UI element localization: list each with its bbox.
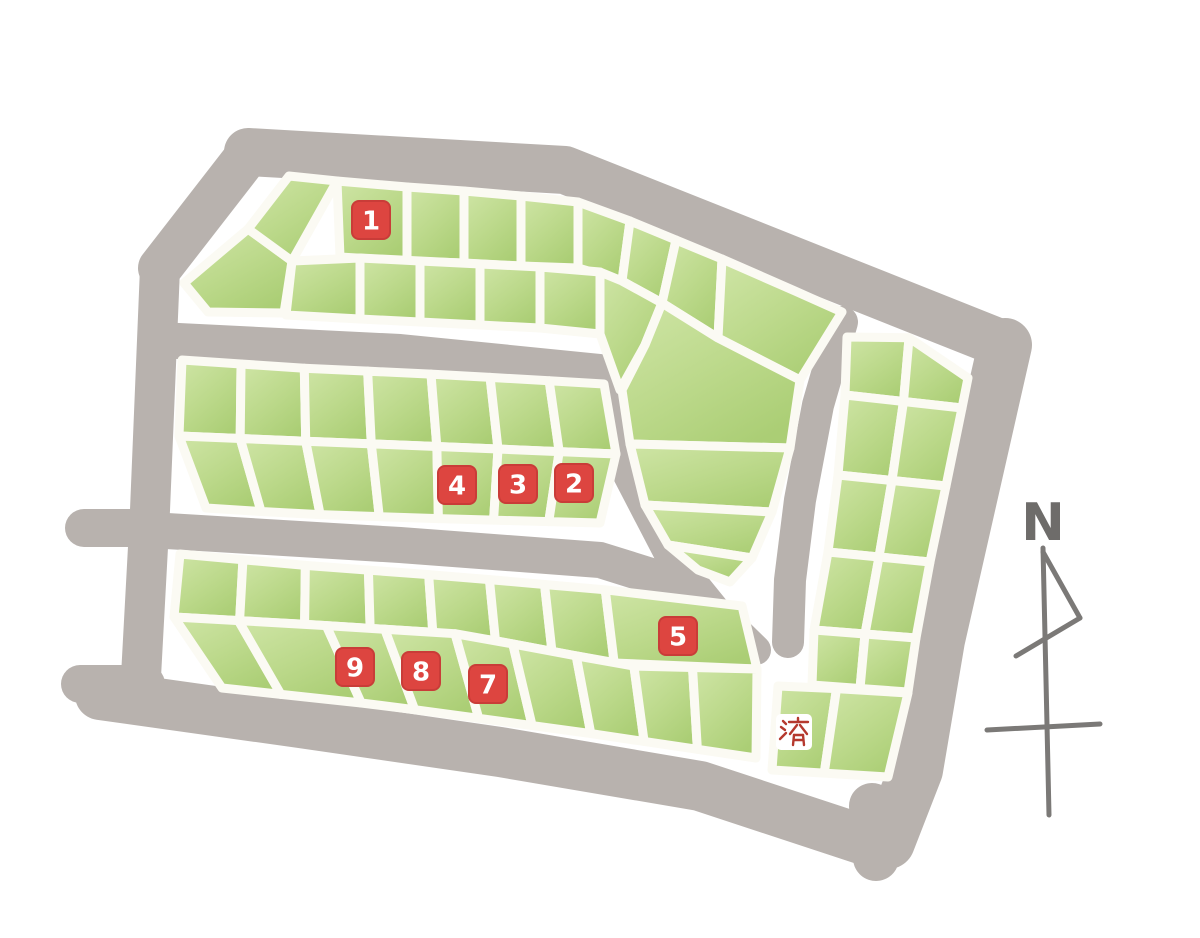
lot-map-canvas: 12345789 N [0, 0, 1200, 938]
lot-marker-3[interactable]: 3 [499, 465, 537, 503]
sold-lot-marker [776, 714, 812, 750]
lot-marker-number: 2 [565, 470, 583, 500]
lot-parcel-middle [549, 381, 616, 454]
lot-parcel-north-hook [407, 187, 464, 263]
lot-parcel-south [305, 565, 371, 628]
lot-marker-1[interactable]: 1 [352, 201, 390, 239]
compass-arrow [987, 548, 1100, 815]
lot-parcel-south [693, 667, 758, 758]
lot-parcel-north-hook [420, 261, 480, 325]
lot-parcel-north-hook [464, 191, 521, 266]
lot-marker-number: 8 [412, 658, 430, 688]
lot-marker-number: 3 [509, 471, 527, 501]
lot-parcel-south [174, 554, 243, 621]
lot-parcel-east [892, 402, 962, 487]
lot-parcel-north-hook [286, 258, 360, 319]
lot-marker-2[interactable]: 2 [555, 464, 593, 502]
lot-marker-5[interactable]: 5 [659, 617, 697, 655]
lot-parcel-middle [368, 371, 437, 446]
lot-parcel-south [240, 560, 306, 625]
lot-parcel-middle [240, 364, 306, 441]
lot-parcel-east [824, 689, 908, 777]
lot-parcel-middle [371, 444, 438, 519]
lot-parcel-south [634, 666, 698, 749]
compass-north-indicator: N [987, 493, 1100, 815]
lot-parcel-middle [179, 360, 241, 439]
lot-parcel-north-hook [521, 196, 578, 268]
lot-parcel-south [368, 570, 432, 632]
lot-parcel-east [865, 557, 930, 638]
lot-marker-4[interactable]: 4 [438, 466, 476, 504]
lot-parcel-north-hook [540, 267, 600, 334]
lot-marker-number: 1 [362, 207, 380, 237]
lot-parcel-middle [304, 368, 371, 444]
lot-marker-number: 4 [448, 472, 466, 502]
road-south-stub [872, 806, 876, 858]
lot-map-page: 12345789 N [0, 0, 1200, 938]
compass-n-label: N [1021, 493, 1065, 553]
lot-marker-number: 5 [669, 623, 687, 653]
lot-parcel-east [860, 634, 916, 692]
lot-marker-number: 9 [346, 654, 364, 684]
lot-parcel-north-hook [360, 258, 420, 322]
lot-parcel-north-hook [480, 264, 540, 328]
lot-marker-7[interactable]: 7 [469, 665, 507, 703]
lot-marker-9[interactable]: 9 [336, 648, 374, 686]
lot-parcel-east [879, 481, 946, 563]
lot-marker-number: 7 [479, 671, 497, 701]
lot-marker-8[interactable]: 8 [402, 652, 440, 690]
